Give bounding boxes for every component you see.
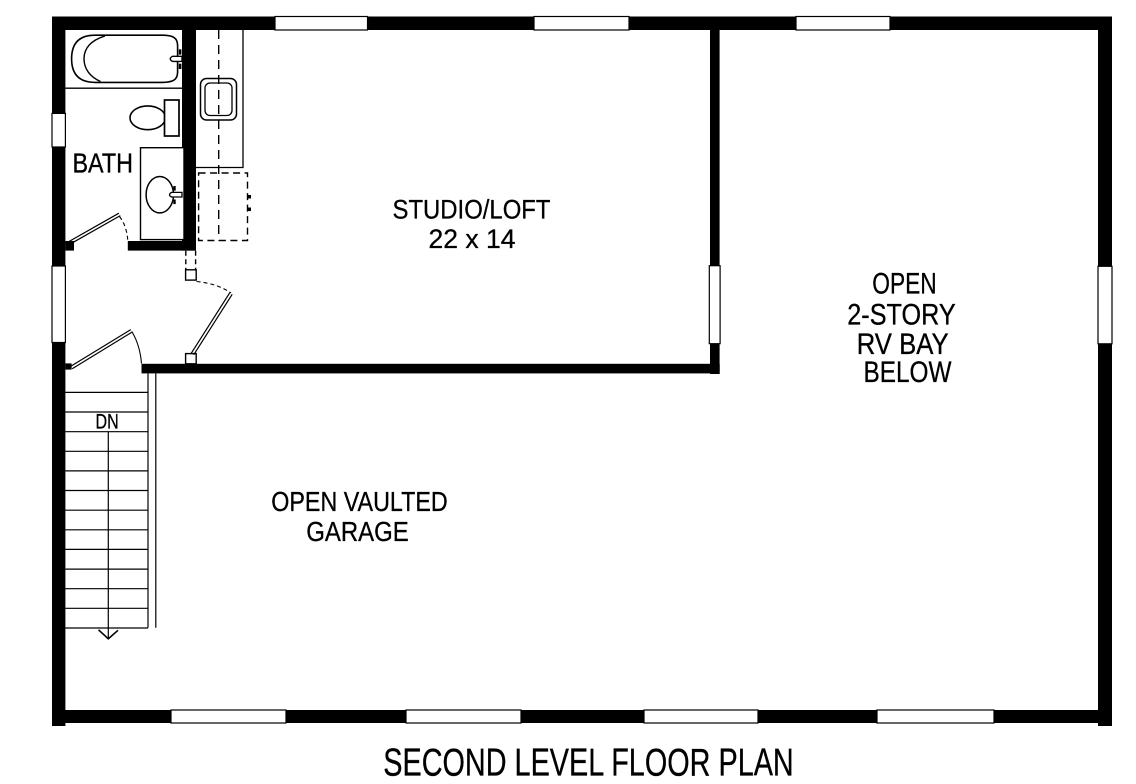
- svg-text:SECOND LEVEL FLOOR PLAN: SECOND LEVEL FLOOR PLAN: [383, 741, 794, 784]
- svg-text:2-STORY: 2-STORY: [847, 298, 956, 331]
- svg-text:STUDIO/LOFT: STUDIO/LOFT: [393, 195, 551, 225]
- svg-text:BATH: BATH: [73, 148, 134, 179]
- svg-text:BELOW: BELOW: [864, 356, 953, 389]
- svg-text:22 x 14: 22 x 14: [429, 224, 516, 254]
- svg-text:GARAGE: GARAGE: [306, 516, 409, 547]
- svg-text:DN: DN: [96, 411, 119, 434]
- svg-text:OPEN: OPEN: [872, 268, 937, 301]
- svg-text:OPEN VAULTED: OPEN VAULTED: [271, 486, 448, 517]
